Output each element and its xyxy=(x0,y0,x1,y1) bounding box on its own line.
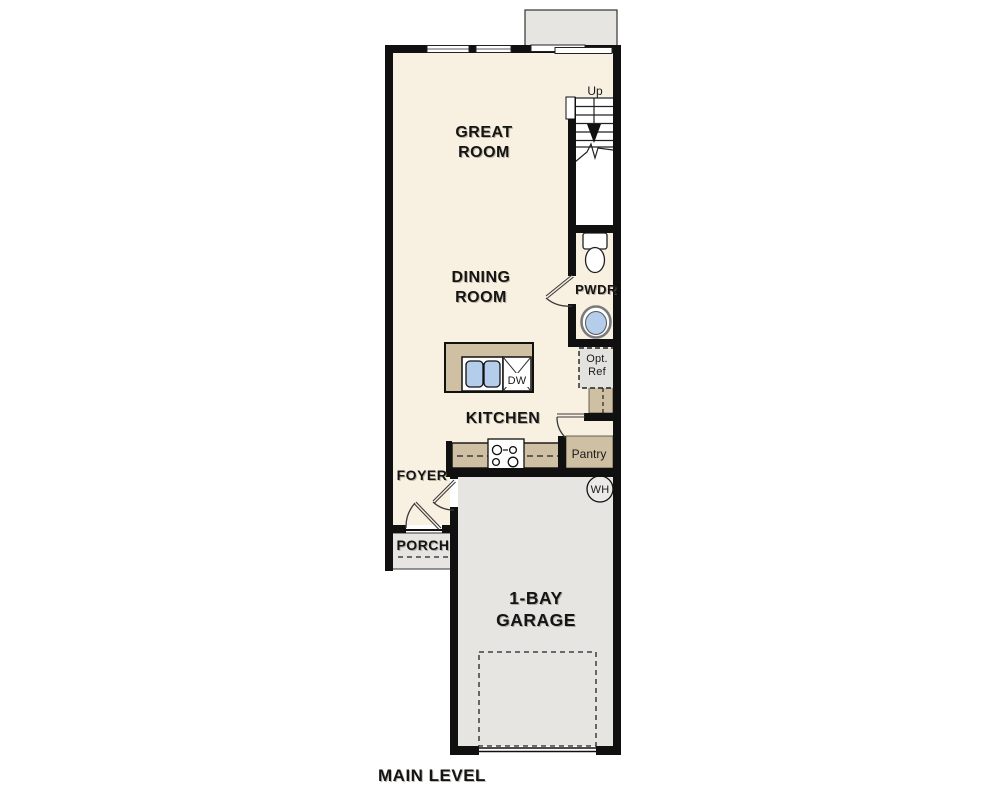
wall-garage-bottom-left xyxy=(450,746,479,755)
water-heater-label: WH xyxy=(591,484,610,496)
range-box xyxy=(488,439,524,470)
dishwasher: DW xyxy=(503,357,531,391)
burner-2 xyxy=(510,447,517,454)
garage-label-line1: 1-BAY xyxy=(509,588,562,608)
wall-left-exterior xyxy=(385,45,393,571)
stair-rail-marker xyxy=(566,97,575,119)
island-sink xyxy=(462,357,503,391)
burner-3 xyxy=(493,459,500,466)
wall-right-exterior xyxy=(613,45,621,755)
toilet-tank xyxy=(583,233,607,249)
wall-garage-bottom-right xyxy=(596,746,621,755)
wall-stair-powder-divider xyxy=(568,225,621,233)
dining-room-label-line2: ROOM xyxy=(455,289,507,306)
sliding-door-panel-2 xyxy=(555,48,612,54)
powder-sink-basin xyxy=(586,312,607,335)
toilet xyxy=(583,233,607,273)
powder-sink xyxy=(582,307,611,338)
dishwasher-label: DW xyxy=(508,375,527,387)
powder-room-label: PWDR xyxy=(575,282,617,297)
wall-garage-left-stub xyxy=(450,477,458,479)
foyer-label: FOYER xyxy=(397,467,448,483)
wall-kitchen-garage-divider xyxy=(446,468,621,477)
toilet-bowl xyxy=(586,248,605,273)
plan-title: MAIN LEVEL xyxy=(378,766,486,785)
water-heater: WH xyxy=(587,476,613,502)
dining-room-label-line1: DINING xyxy=(452,269,511,286)
wall-garage-left xyxy=(450,507,458,755)
wall-powder-bottom xyxy=(568,339,621,347)
wall-foyer-bottom-right xyxy=(442,525,457,533)
stairs-up-label: Up xyxy=(587,84,603,98)
porch-label: PORCH xyxy=(396,537,449,553)
pantry-label: Pantry xyxy=(572,447,607,461)
wall-pantry-left xyxy=(558,436,566,468)
optional-refrigerator: Opt. Ref xyxy=(579,348,615,388)
wall-foyer-bottom-left xyxy=(392,525,406,533)
range-cooktop xyxy=(488,439,524,470)
opt-ref-label-line1: Opt. xyxy=(586,353,608,365)
wall-powder-left-upper xyxy=(568,233,576,276)
wall-cabinet-bottom xyxy=(584,413,621,421)
great-room-label-line1: GREAT xyxy=(455,124,512,141)
great-room-label-line2: ROOM xyxy=(458,144,510,161)
burner-4 xyxy=(508,457,518,467)
floor-plan-canvas: DW Opt. Ref WH xyxy=(0,0,1000,800)
garage-label-line2: GARAGE xyxy=(496,610,576,630)
cabinet-block xyxy=(589,387,613,413)
rear-patio-pad xyxy=(525,10,617,48)
sink-basin-left xyxy=(466,361,483,387)
burner-1 xyxy=(492,445,501,454)
sink-basin-right xyxy=(484,361,500,387)
opt-ref-label-line2: Ref xyxy=(588,366,606,378)
floor-plan-page: DW Opt. Ref WH xyxy=(0,0,1000,800)
kitchen-label: KITCHEN xyxy=(466,410,541,427)
